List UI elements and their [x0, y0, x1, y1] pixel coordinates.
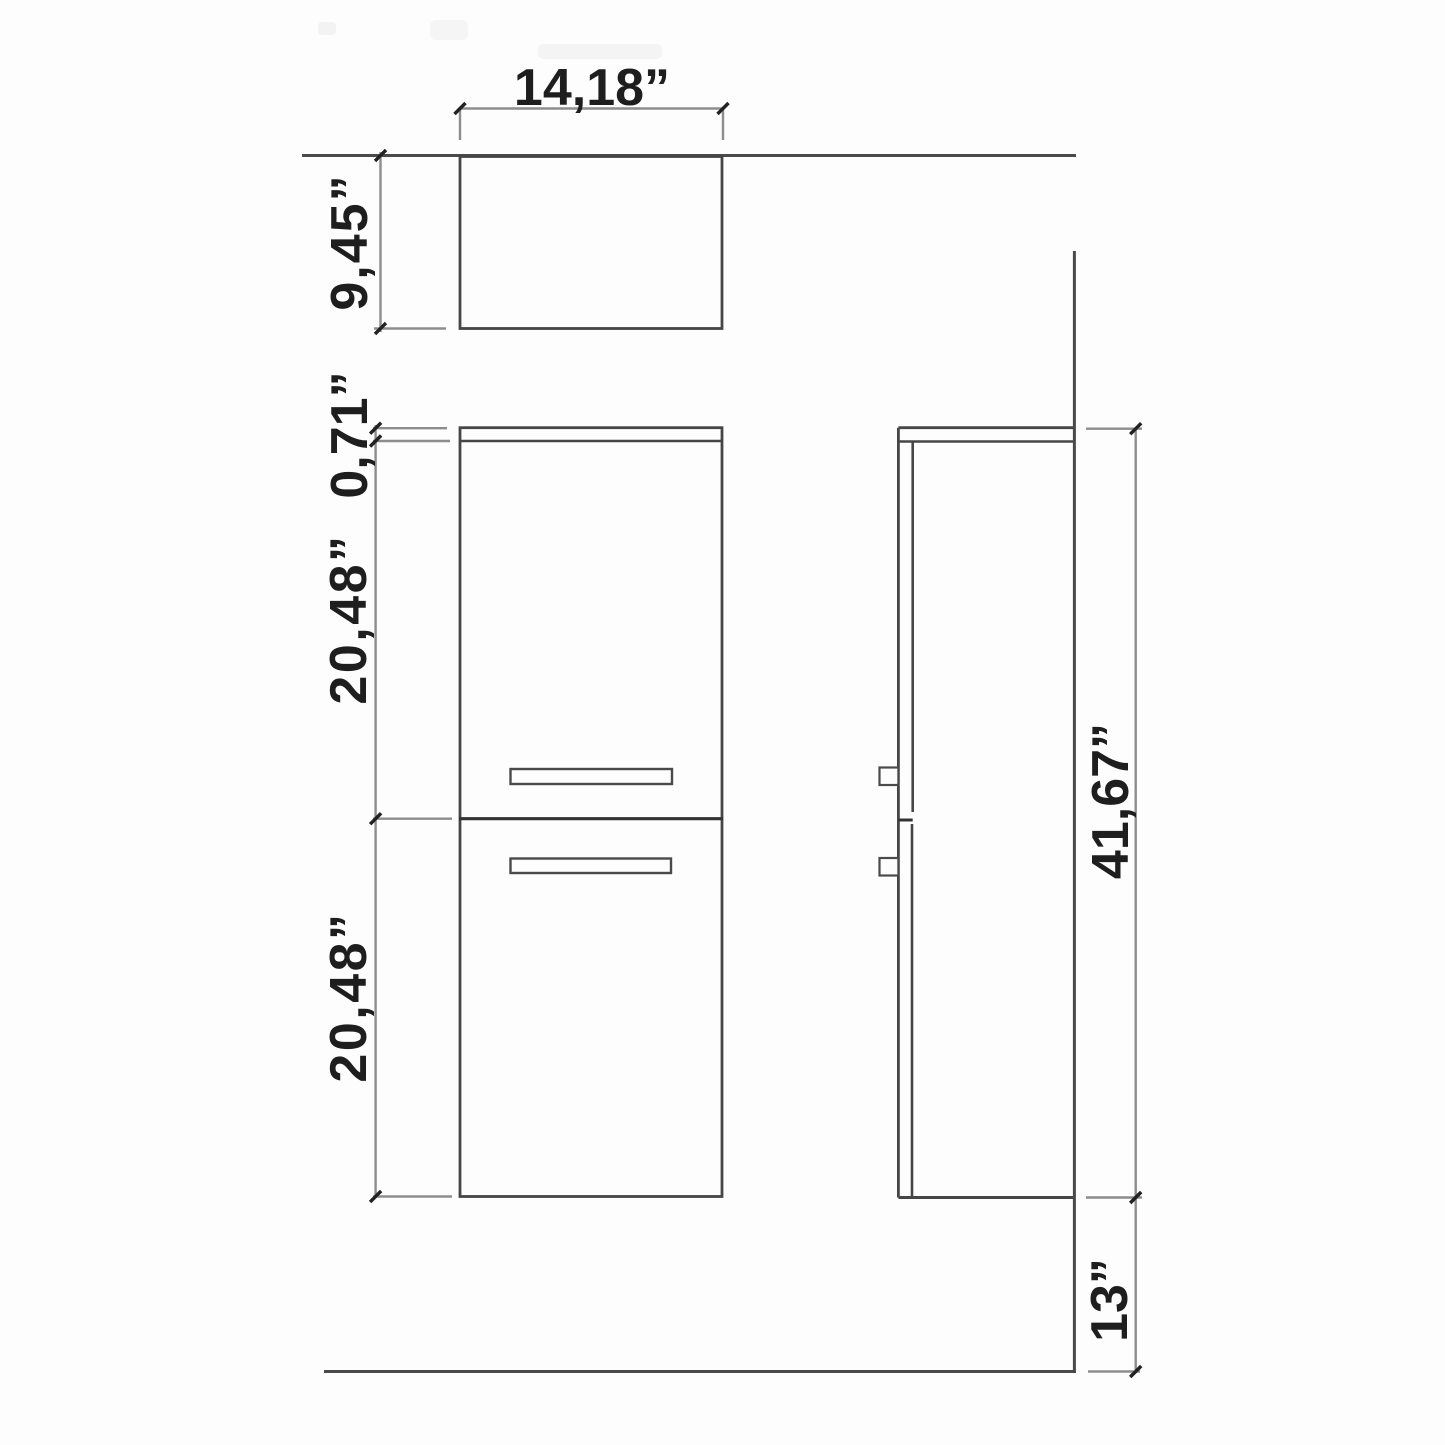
svg-text:20,48”: 20,48” [320, 533, 378, 704]
svg-text:20,48”: 20,48” [320, 911, 378, 1082]
svg-text:0,71”: 0,71” [321, 371, 379, 498]
svg-text:13”: 13” [1081, 1258, 1139, 1342]
svg-text:41,67”: 41,67” [1082, 723, 1140, 879]
svg-text:14,18”: 14,18” [514, 59, 670, 117]
svg-text:9,45”: 9,45” [321, 173, 379, 310]
